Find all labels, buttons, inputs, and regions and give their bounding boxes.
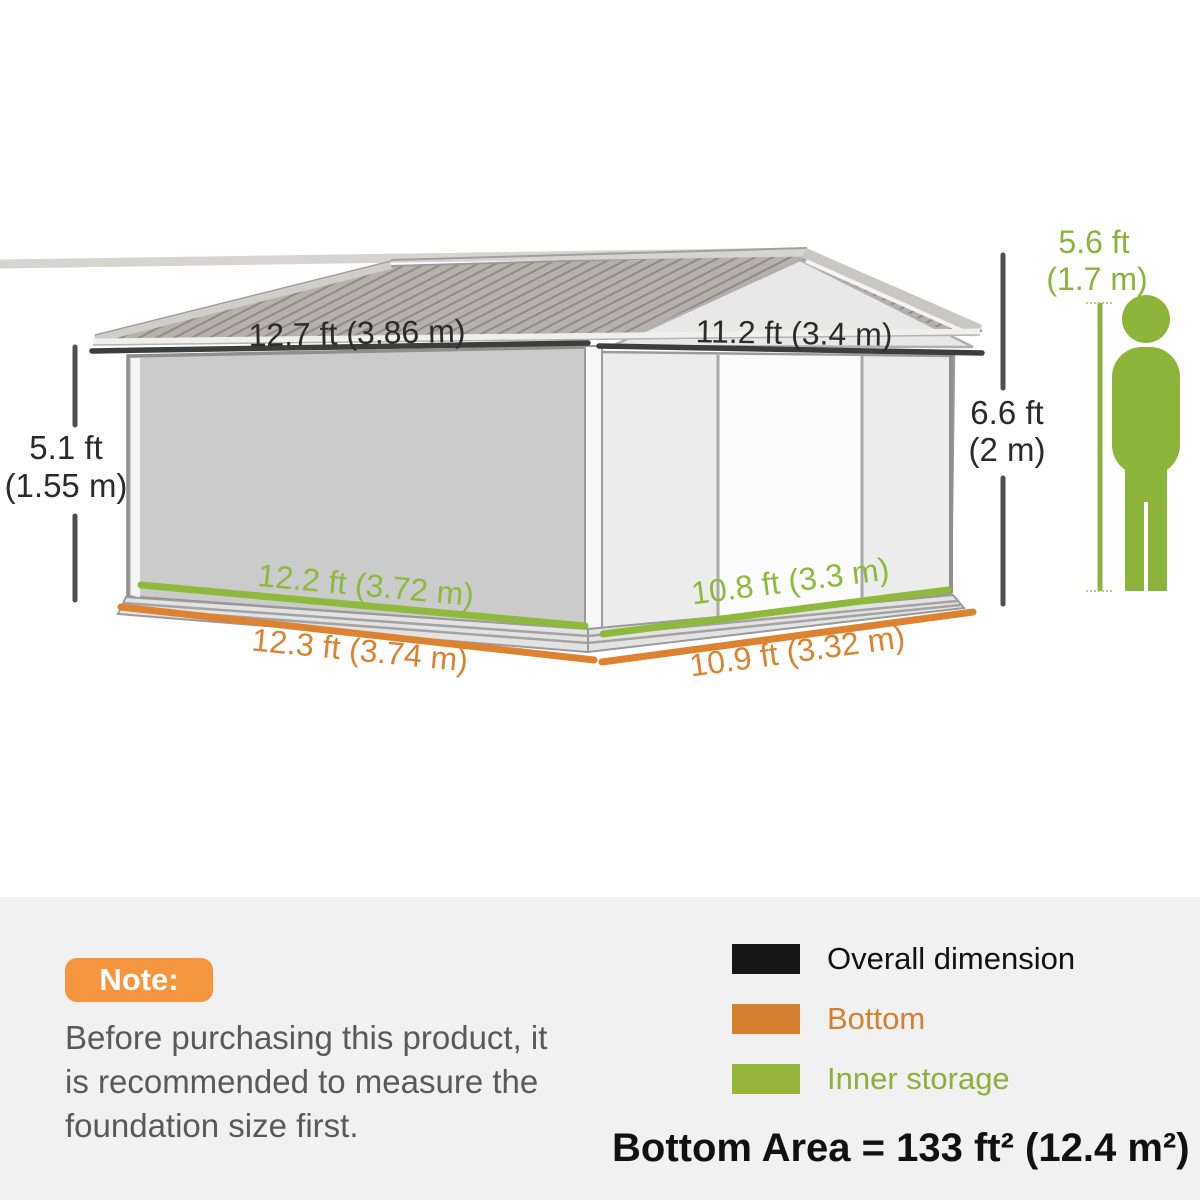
side-wall-trim	[131, 358, 140, 598]
label-roof-front: 11.2 ft (3.4 m)	[695, 313, 892, 352]
legend-swatch-inner-storage	[732, 1064, 800, 1094]
legend-label-inner-storage: Inner storage	[827, 1061, 1010, 1097]
label-person-height-m: (1.7 m)	[1046, 261, 1147, 297]
legend-swatch-overall	[732, 944, 800, 974]
label-peak-height-ft: 6.6 ft	[970, 394, 1043, 431]
label-wall-height-ft: 5.1 ft	[29, 429, 102, 466]
note-badge-label: Note:	[99, 962, 178, 998]
label-peak-height-m: (2 m)	[969, 431, 1046, 468]
legend: Overall dimension Bottom Inner storage	[732, 944, 1192, 1124]
label-person-height-ft: 5.6 ft	[1058, 224, 1129, 260]
corner-post	[585, 346, 602, 636]
legend-row-overall: Overall dimension	[732, 944, 1192, 974]
person-height-labels: 5.6 ft (1.7 m)	[1046, 224, 1147, 297]
person-figure	[1112, 295, 1180, 591]
label-roof-side: 12.7 ft (3.86 m)	[248, 313, 466, 354]
shed-diagram: 12.7 ft (3.86 m) 11.2 ft (3.4 m) 5.1 ft …	[0, 0, 1200, 900]
legend-swatch-bottom	[732, 1004, 800, 1034]
legend-row-inner-storage: Inner storage	[732, 1064, 1192, 1094]
note-text: Before purchasing this product, it is re…	[65, 1016, 625, 1148]
note-line: is recommended to measure the	[65, 1060, 625, 1104]
bottom-area-text: Bottom Area = 133 ft² (12.4 m²)	[612, 1126, 1178, 1171]
note-badge: Note:	[65, 958, 213, 1002]
person-head	[1122, 295, 1170, 343]
legend-label-overall: Overall dimension	[827, 941, 1075, 977]
note-line: Before purchasing this product, it	[65, 1016, 625, 1060]
legend-label-bottom: Bottom	[827, 1001, 925, 1037]
legend-row-bottom: Bottom	[732, 1004, 1192, 1034]
label-wall-height-m: (1.55 m)	[5, 467, 128, 504]
note-line: foundation size first.	[65, 1104, 625, 1148]
person-height-dimension	[1086, 303, 1114, 591]
